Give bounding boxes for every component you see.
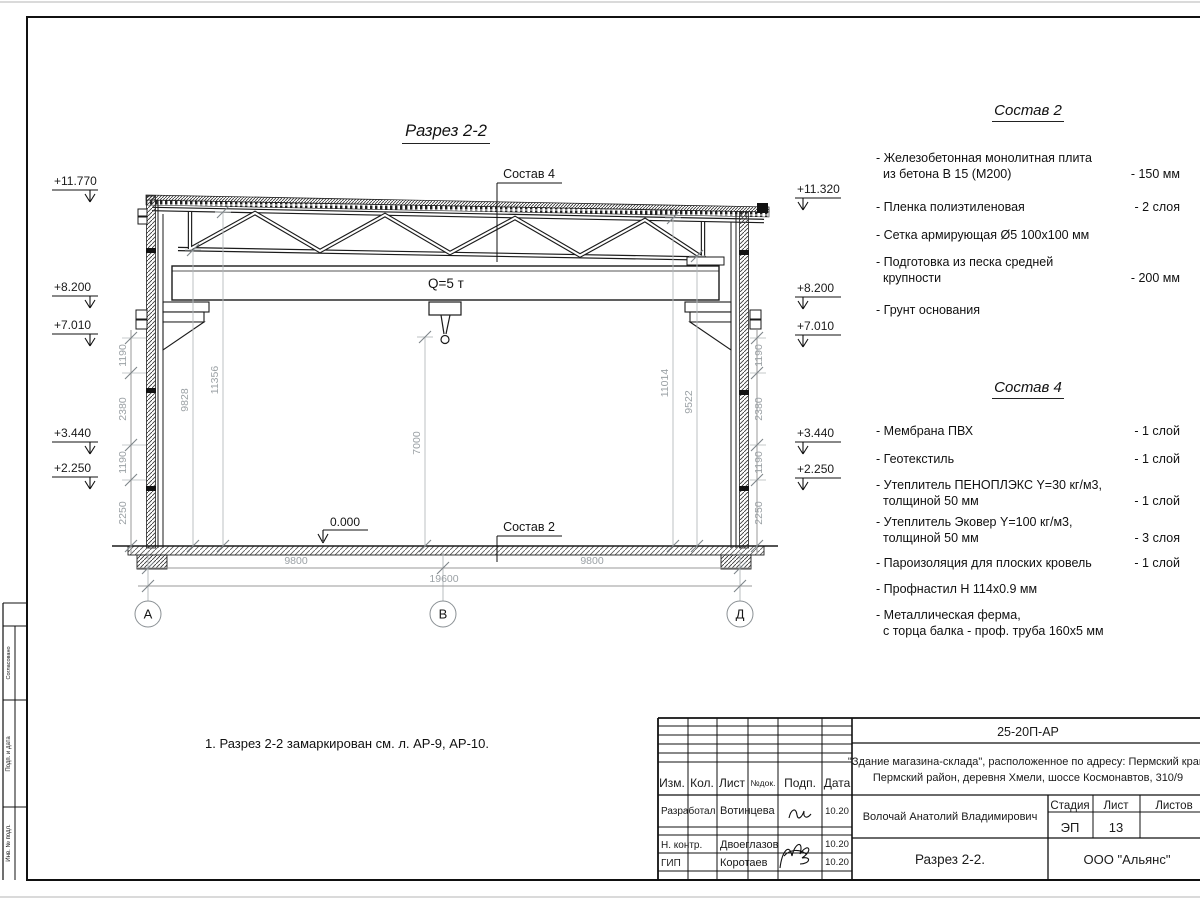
elev-left-8200: +8.200: [54, 280, 91, 294]
list-item: - Геотекстиль - 1 слой: [876, 452, 1180, 468]
side-stamp-labels: Согласовано Подп. и дата Инв. № подл.: [5, 646, 12, 861]
elev-right-7010: +7.010: [797, 319, 834, 333]
left-wall: [136, 196, 163, 548]
row3-name: Коротаев: [720, 857, 768, 869]
elev-right-2250: +2.250: [797, 462, 834, 476]
dim-9522: 9522: [683, 390, 695, 414]
object-line-1: "Здание магазина-склада", расположенное …: [848, 756, 1200, 768]
chief-name: Волочай Анатолий Владимирович: [863, 811, 1038, 823]
crane-capacity-label: Q=5 т: [428, 276, 464, 291]
composition-4-list: Состав 4 - Мембрана ПВХ - 1 слой - Геоте…: [876, 380, 1180, 396]
company-name: ООО "Альянс": [1084, 852, 1171, 867]
dim-19600: 19600: [429, 573, 458, 585]
wall-dim-chains: 1190 2380 1190 2250 1190 2380 1190 2250: [117, 330, 766, 554]
foundation-left: [137, 555, 167, 569]
side-label-2: Подп. и дата: [6, 736, 12, 772]
drawing-note: 1. Разрез 2-2 замаркирован см. л. АР-9, …: [205, 736, 489, 751]
dim-left-1190a: 1190: [117, 344, 129, 367]
elev-left-7010: +7.010: [54, 318, 91, 332]
crane-trolley: [429, 302, 461, 315]
dim-9828: 9828: [179, 388, 191, 412]
dim-9800-right: 9800: [580, 555, 604, 567]
stage-value: ЭП: [1061, 820, 1080, 835]
elev-right-3440: +3.440: [797, 426, 834, 440]
dim-9800-left: 9800: [284, 555, 308, 567]
title-block-text: Изм. Кол. Лист №док. Подп. Дата Разработ…: [659, 725, 1200, 869]
signature-2: [780, 844, 809, 868]
object-line-2: Пермский район, деревня Хмели, шоссе Кос…: [873, 772, 1183, 784]
col-ndok: №док.: [751, 778, 776, 788]
col-podp: Подп.: [784, 776, 816, 790]
sheet-value: 13: [1109, 820, 1123, 835]
list-item: - Мембрана ПВХ - 1 слой: [876, 424, 1180, 440]
dim-left-2380: 2380: [117, 397, 129, 421]
sheet-title: Разрез 2-2.: [915, 852, 985, 867]
col-data: Дата: [824, 776, 851, 790]
drawing-frame: [3, 17, 1200, 880]
list-item: - Пароизоляция для плоских кровель - 1 с…: [876, 556, 1180, 572]
elev-left-11770: +11.770: [54, 174, 97, 188]
section-title-text: Разрез 2-2: [402, 122, 490, 144]
list-item: - Сетка армирующая Ø5 100х100 мм: [876, 228, 1180, 244]
section-drawing-svg: Согласовано Подп. и дата Инв. № подл. Q=…: [0, 0, 1200, 900]
row1-role: Разработал: [661, 805, 716, 817]
dim-11356: 11356: [209, 366, 221, 395]
dim-right-1190a: 1190: [753, 344, 765, 367]
doc-number: 25-20П-АР: [997, 725, 1059, 739]
callout-roof-label: Состав 4: [503, 167, 555, 181]
dim-left-2250: 2250: [117, 501, 129, 525]
list-item: - Утеплитель ПЕНОПЛЭКС Y=30 кг/м3,толщин…: [876, 478, 1180, 509]
dim-right-1190b: 1190: [753, 451, 765, 474]
axis-label-a: А: [144, 607, 153, 622]
row2-date: 10.20: [825, 839, 849, 850]
col-kol: Кол.: [690, 776, 714, 790]
elev-right-8200: +8.200: [797, 281, 834, 295]
composition-4-title: Состав 4: [876, 380, 1180, 396]
list-item: - Подготовка из песка среднейкрупности -…: [876, 255, 1180, 286]
dim-right-2380: 2380: [753, 397, 765, 421]
foundation-right: [721, 555, 751, 569]
row1-name: Вотинцева: [720, 805, 775, 817]
callout-floor-label: Состав 2: [503, 520, 555, 534]
elev-left-2250: +2.250: [54, 461, 91, 475]
sheet-label: Лист: [1104, 800, 1130, 812]
zero-label: 0.000: [330, 515, 360, 529]
section-title: Разрез 2-2: [366, 122, 526, 141]
row2-role: Н. контр.: [661, 840, 702, 851]
dim-right-2250: 2250: [753, 501, 765, 525]
list-item: - Утеплитель Эковер Y=100 кг/м3,толщиной…: [876, 515, 1180, 546]
dim-11014: 11014: [659, 369, 671, 398]
roof-end-cap: [757, 203, 768, 213]
crane-hook: [441, 315, 450, 334]
col-izm: Изм.: [659, 776, 685, 790]
elev-right-11320: +11.320: [797, 182, 840, 196]
signature-1: [789, 810, 811, 818]
roof-truss: [152, 209, 764, 265]
row2-name: Двоеглазов: [720, 839, 779, 851]
sheets-label: Листов: [1155, 800, 1192, 812]
composition-2-list: Состав 2 - Железобетонная монолитная пли…: [876, 103, 1180, 119]
row1-date: 10.20: [825, 806, 849, 817]
list-item: - Металлическая ферма,с торца балка - пр…: [876, 608, 1180, 639]
drawing-sheet: Согласовано Подп. и дата Инв. № подл. Q=…: [0, 0, 1200, 900]
list-item: - Железобетонная монолитная плитаиз бето…: [876, 151, 1180, 182]
bottom-dims: 9800 9800 19600 А В Д: [135, 552, 753, 627]
axis-label-d: Д: [736, 607, 745, 622]
side-label-1: Согласовано: [6, 646, 12, 679]
axis-label-b: В: [439, 607, 448, 622]
composition-2-title: Состав 2: [876, 103, 1180, 119]
list-item: - Пленка полиэтиленовая - 2 слоя: [876, 200, 1180, 216]
stage-label: Стадия: [1050, 800, 1089, 812]
dim-7000: 7000: [411, 431, 423, 455]
col-list: Лист: [719, 776, 746, 790]
elev-left-3440: +3.440: [54, 426, 91, 440]
row3-date: 10.20: [825, 857, 849, 868]
side-label-3: Инв. № подл.: [5, 824, 12, 862]
list-item: - Профнастил Н 114х0.9 мм: [876, 582, 1180, 598]
list-item: - Грунт основания: [876, 303, 1180, 319]
dim-left-1190b: 1190: [117, 451, 129, 474]
row3-role: ГИП: [661, 858, 681, 869]
zero-level-mark: 0.000: [318, 515, 368, 543]
